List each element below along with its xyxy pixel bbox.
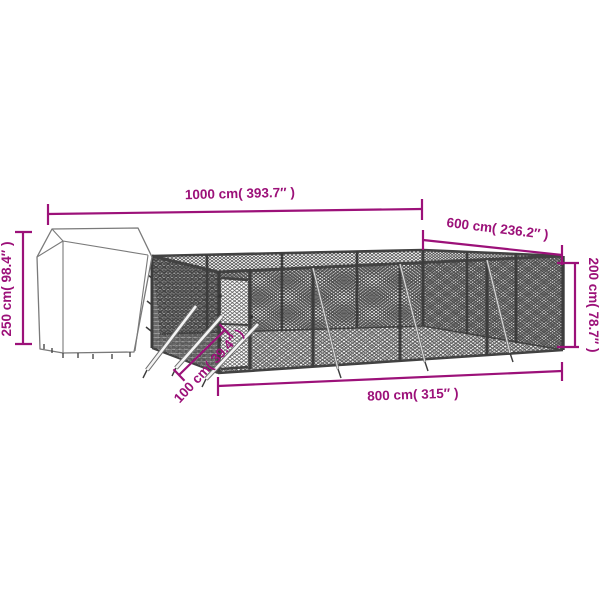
dimension-total-length: 1000 cm( 393.7″ ) — [48, 185, 422, 225]
dimension-label-fence-height: 200 cm( 78.7″ ) — [586, 257, 600, 352]
dimension-label-total-length: 1000 cm( 393.7″ ) — [185, 185, 295, 202]
roof-cover-shelter — [37, 228, 152, 359]
kennel-diagram-canvas: 1000 cm( 393.7″ ) 600 cm( 236.2″ ) 250 c… — [0, 0, 600, 600]
dimension-label-side-depth: 600 cm( 236.2″ ) — [446, 215, 550, 242]
door-latch — [249, 315, 253, 319]
dimension-label-front-length: 800 cm( 315″ ) — [367, 385, 459, 403]
door-hinge-top — [218, 294, 221, 297]
dimension-shelter-height: 250 cm( 98.4″ ) — [0, 232, 32, 344]
dimension-label-shelter-height: 250 cm( 98.4″ ) — [0, 241, 14, 336]
door-mid-rail — [221, 324, 248, 325]
product-dimension-diagram: 1000 cm( 393.7″ ) 600 cm( 236.2″ ) 250 c… — [0, 0, 600, 600]
